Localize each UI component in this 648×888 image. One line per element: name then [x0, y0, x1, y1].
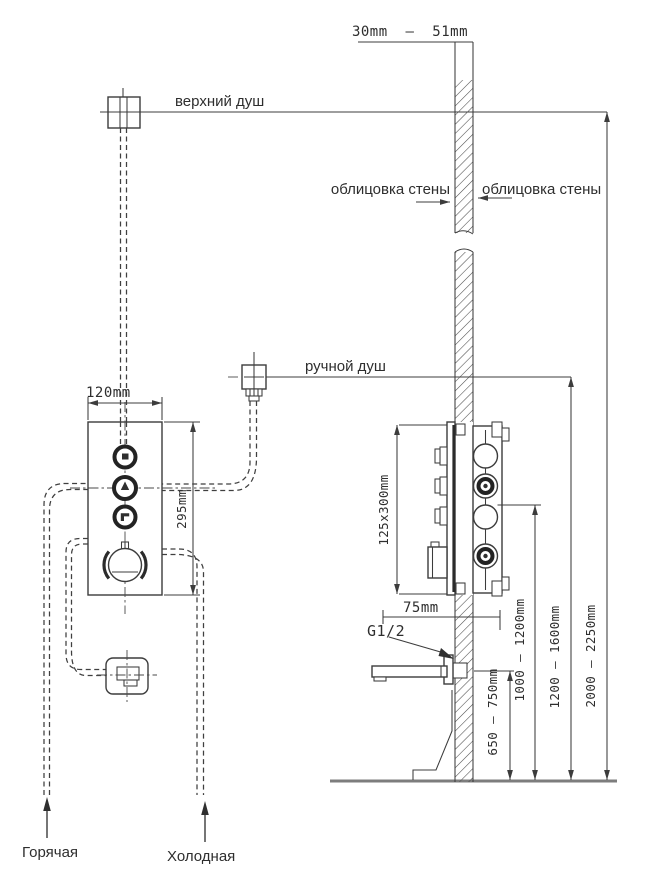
thread-arrow-head — [439, 648, 455, 659]
valve-port-circle — [474, 505, 498, 529]
mounting-tab-bottom — [492, 581, 502, 596]
wall-hatch-lower — [455, 595, 473, 782]
valve-port-circle — [474, 444, 498, 468]
stem-base — [440, 447, 447, 465]
hand-shower-nozzle — [249, 396, 259, 401]
stem-base — [440, 507, 447, 525]
diverter-button-3 — [115, 507, 136, 528]
valve-outlet-center — [483, 554, 487, 558]
valve-stems — [428, 447, 447, 578]
wall-break-line — [455, 249, 473, 252]
stem-cap — [435, 479, 440, 493]
panel-width-label: 120mm — [86, 385, 131, 401]
hot-pipe-dashed — [44, 484, 88, 796]
cold-pipe-dashed — [162, 549, 197, 795]
wall-hatch-upper — [455, 80, 473, 233]
stem-cap — [435, 449, 440, 463]
mounting-bracket-bottom — [502, 577, 509, 590]
valve-offset-label: 75mm — [403, 600, 439, 616]
hand-shower-hose-dashed — [162, 401, 250, 484]
hand-shower-height-label: 1200 – 1600mm — [547, 605, 562, 708]
clamp-screw-bottom — [456, 583, 465, 594]
installation-diagram: 30mm – 51mm облицовка стены облицовка ст… — [0, 0, 648, 888]
valve-outlet-center — [483, 484, 487, 488]
wall-cladding-left-label: облицовка стены — [331, 181, 450, 198]
hot-pipe-dashed — [50, 490, 89, 796]
reference-lines — [100, 112, 617, 781]
spout-side-view: G1/2 — [367, 622, 467, 684]
clamp-screw-top — [456, 424, 465, 435]
thread-size-label: G1/2 — [367, 622, 405, 640]
hand-shower-label: ручной душ — [305, 358, 386, 375]
temperature-knob — [109, 549, 142, 582]
concealed-valve-side-view: 125x300mm 75mm — [376, 422, 509, 630]
thread-leader-line — [389, 637, 444, 653]
overhead-shower-icon — [122, 454, 129, 460]
supply-labels: Горячая Холодная — [22, 797, 235, 865]
upper-shower-label: верхний душ — [175, 93, 264, 110]
wall-cutout — [455, 422, 473, 595]
stem-base — [440, 477, 447, 495]
knob-housing — [428, 547, 447, 578]
wall-spout-front-view — [97, 650, 157, 702]
housing-tab — [431, 542, 439, 547]
upper-shower-height-label: 2000 – 2250mm — [583, 604, 598, 707]
spout-tube — [372, 666, 447, 677]
finish-thickness-label: 30mm – 51mm — [352, 24, 468, 40]
hot-arrow-head — [43, 797, 51, 811]
cold-supply-label: Холодная — [167, 848, 235, 865]
hand-shower: ручной душ — [162, 352, 386, 491]
spout-aerator-side — [374, 677, 386, 681]
panel-height-label: 295mm — [174, 489, 189, 529]
stem-cap — [435, 509, 440, 523]
mounting-bracket-top — [502, 428, 509, 441]
spout-wall-connection — [453, 663, 467, 678]
wall-cladding-right-label: облицовка стены — [482, 181, 601, 198]
shower-panel-front-view: 120mm 295mm — [70, 385, 218, 614]
hand-shower-hose-dashed — [162, 401, 257, 491]
diagram-canvas: 30mm – 51mm облицовка стены облицовка ст… — [0, 0, 648, 888]
cold-arrow-head — [201, 801, 209, 815]
floor-step-profile — [413, 690, 452, 780]
wall-hatch-middle — [455, 252, 473, 422]
mounting-tab-top — [492, 422, 502, 437]
hot-supply-label: Горячая — [22, 844, 78, 861]
valve-box-size-label: 125x300mm — [376, 474, 391, 545]
valve-height-label: 1000 – 1200mm — [512, 598, 527, 701]
spout-height-label: 650 – 750mm — [485, 668, 500, 755]
